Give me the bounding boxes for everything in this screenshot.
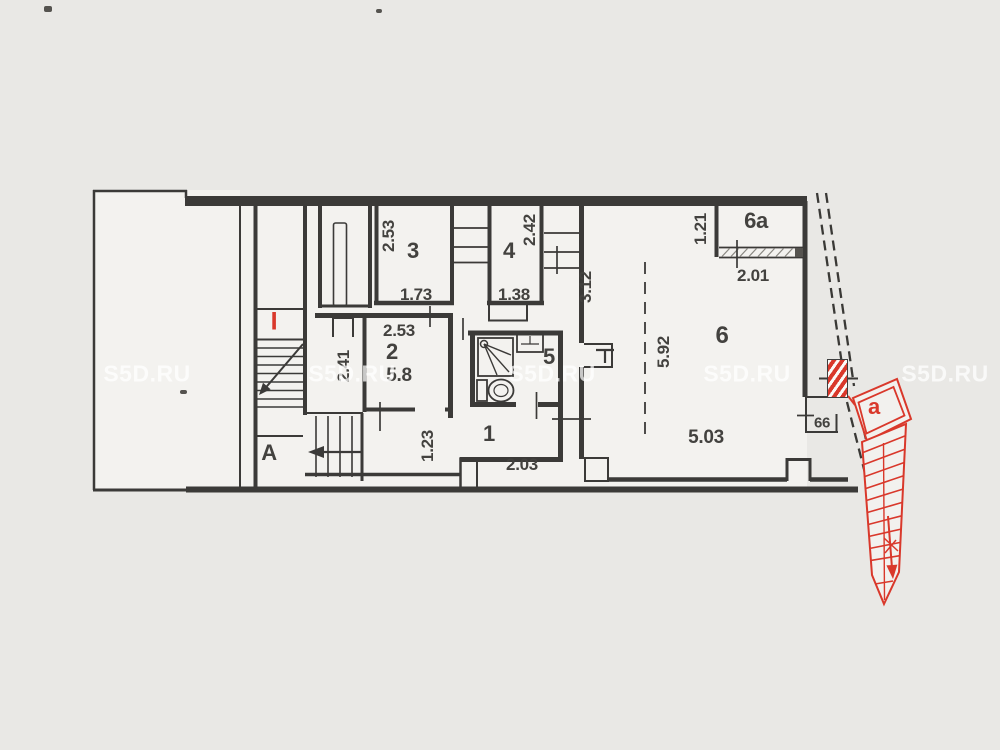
hatched-wall-block	[827, 359, 848, 398]
watermark-text: S5D.RU	[508, 361, 595, 388]
scan-speck	[376, 9, 382, 13]
external-stair-label: a	[868, 394, 880, 420]
watermark-text: S5D.RU	[308, 361, 395, 388]
dim-room4-height: 2.42	[520, 214, 540, 246]
dim-room6-left-height: 3.12	[576, 271, 596, 303]
room1-number: 1	[483, 421, 495, 447]
dim-corridor-width: 2.03	[506, 455, 538, 475]
watermark-text: S5D.RU	[703, 361, 790, 388]
dim-corridor-height: 1.23	[418, 430, 438, 462]
room4-number: 4	[503, 238, 515, 264]
dim-ledge: 66	[814, 415, 830, 432]
room6-number: 6	[715, 322, 728, 350]
watermark-text: S5D.RU	[901, 361, 988, 388]
stair-zone-label: A	[261, 440, 277, 466]
dim-room6a-height: 1.21	[691, 213, 711, 245]
dim-room6a-width: 2.01	[737, 266, 769, 286]
dim-room3-width: 1.73	[400, 285, 432, 305]
watermark-text: S5D.RU	[103, 361, 190, 388]
scan-speck	[44, 6, 52, 12]
scan-speck	[180, 390, 187, 394]
dim-room2-width: 2.53	[383, 321, 415, 341]
dim-room6-width: 5.03	[688, 427, 724, 449]
room6a-number: 6a	[744, 208, 768, 234]
floor-marker: I	[271, 308, 278, 337]
dim-room6-height: 5.92	[654, 336, 674, 368]
dim-room3-height: 2.53	[379, 220, 399, 252]
dim-room4-width: 1.38	[498, 285, 530, 305]
floor-plan-scan: 2.5331.7342.421.383.122.5325.82.4151.231…	[0, 0, 1000, 750]
room3-number: 3	[407, 238, 419, 264]
